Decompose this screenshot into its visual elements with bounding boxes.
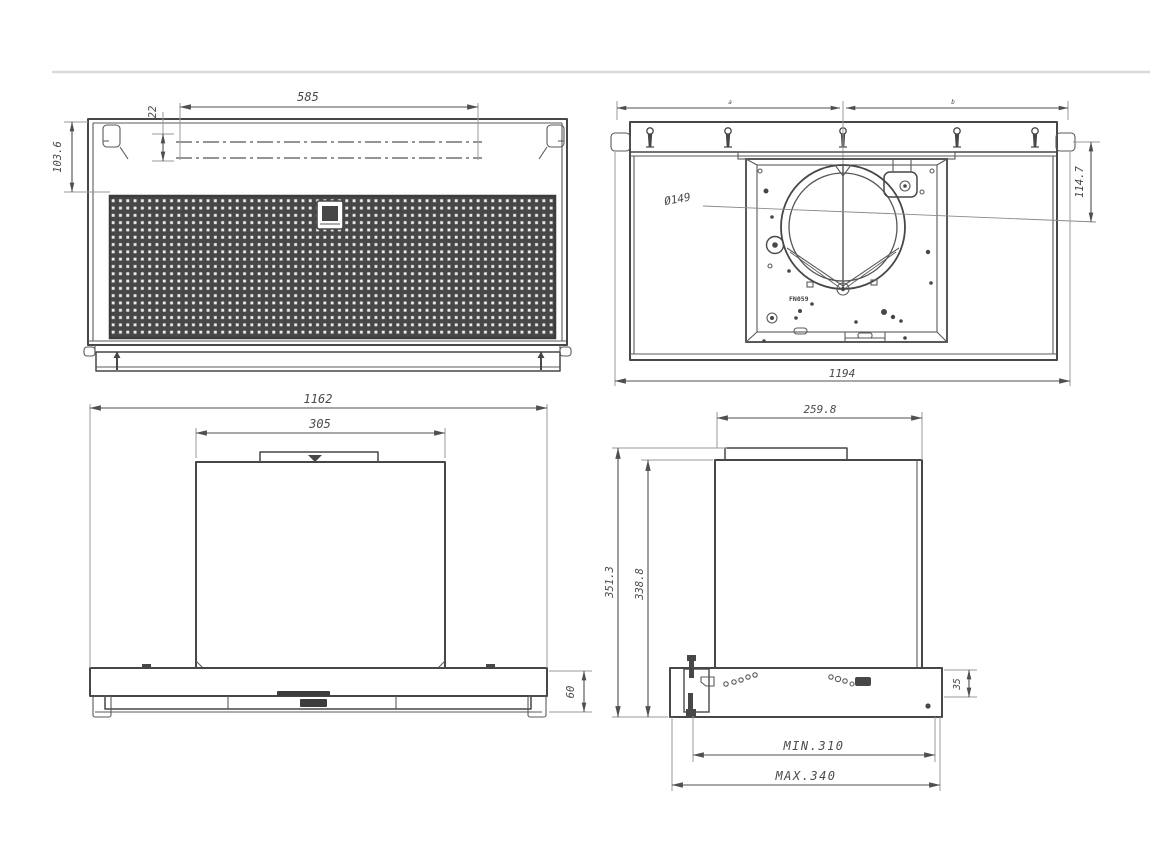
dim-1162-extension (90, 404, 547, 668)
dim-max-label: MAX.340 (774, 769, 836, 783)
dim-span-extensions (617, 101, 1068, 120)
view-hood-top: FN059 Ø149 a b 114.7 1194 (611, 99, 1100, 386)
side-body-holes (724, 673, 931, 709)
bracket-hook (701, 677, 714, 686)
dim-585-label: 585 (297, 90, 319, 104)
view-hood-front: 1162 305 60 (90, 392, 592, 717)
dim-60-label: 60 (565, 686, 577, 699)
mounting-tab-left (611, 133, 630, 151)
bracket-screw-bottom (688, 693, 693, 711)
dim-114-label: 114.7 (1074, 166, 1086, 198)
damper-hub-pin (841, 287, 845, 291)
chimney-outline (196, 462, 445, 668)
bracket-screw-head-top (687, 655, 696, 661)
front-foot-left (93, 696, 111, 717)
ring-tab (807, 282, 813, 287)
dim-span-left-label: a (728, 99, 732, 106)
mounting-screw-icon (646, 128, 654, 147)
view-hood-bottom-filter: 585 22 103.6 (52, 90, 571, 371)
mounting-screw-icon (1031, 128, 1039, 147)
mounting-screw-icon (953, 128, 961, 147)
top-hook-left (142, 664, 151, 668)
corner-tab-right-detail (539, 141, 564, 159)
dim-259-extension (717, 412, 922, 460)
dim-305-label: 305 (308, 417, 331, 431)
dim-diameter-label: Ø149 (663, 191, 691, 208)
technical-drawing-page: 585 22 103.6 (0, 0, 1153, 850)
dim-351-label: 351.3 (604, 566, 616, 599)
view-hood-side: 259.8 351.3 338.8 35 MIN.310 MAX.340 (604, 403, 977, 791)
brand-logo-mark (277, 691, 330, 696)
center-marker-triangle (308, 455, 322, 462)
dim-585-extension (180, 103, 478, 160)
side-lug-right (560, 347, 571, 356)
side-body (670, 668, 942, 717)
duct-bracket-pin (903, 184, 907, 188)
dim-min-label: MIN.310 (782, 739, 844, 753)
dim-22-label: 22 (147, 106, 159, 119)
duct-lug-left-hole (772, 242, 778, 248)
mounting-screw-icon (724, 128, 732, 147)
dim-103-label: 103.6 (52, 141, 64, 173)
dim-span-right-label: b (951, 99, 955, 106)
control-panel-mark (300, 699, 327, 707)
screw-holes (758, 169, 934, 343)
dim-35-label: 35 (952, 678, 963, 691)
part-code-label: FN059 (789, 295, 809, 303)
dim-338-label: 338.8 (634, 568, 646, 601)
bottom-rail-lines (95, 345, 560, 367)
side-lug-left (84, 347, 95, 356)
corner-tab-left (103, 125, 120, 147)
dim-259-label: 259.8 (803, 403, 836, 416)
top-hook-right (486, 664, 495, 668)
range-hood-dimension-drawing: 585 22 103.6 (0, 0, 1153, 850)
bracket-screw-head-bottom (686, 709, 696, 716)
mounting-tab-right (1056, 133, 1075, 151)
mounting-bracket (684, 669, 709, 712)
side-box (715, 460, 922, 668)
dim-1194-label: 1194 (829, 367, 856, 380)
bottom-rail (96, 352, 560, 371)
corner-tab-left-detail (103, 141, 128, 159)
dim-1162-label: 1162 (304, 392, 333, 406)
filter-latch-button (322, 206, 338, 221)
chimney-bottom-corners (196, 661, 445, 668)
side-cap (725, 448, 847, 460)
diameter-leader-line (703, 206, 1096, 222)
